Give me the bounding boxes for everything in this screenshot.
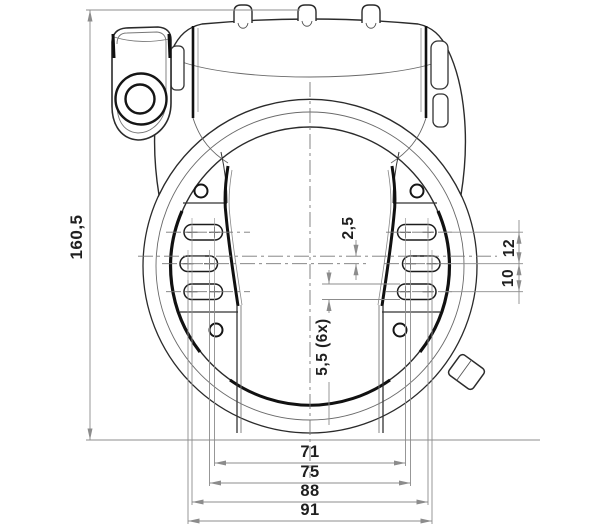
- rivet-hole: [394, 324, 407, 337]
- dim-span-88-label: 88: [300, 482, 319, 500]
- dim-slot-offset-label: 2,5: [340, 216, 357, 239]
- dim-slot-width-label: 5,5 (6x): [314, 318, 331, 375]
- dimension-slot-offset: [354, 240, 359, 280]
- plate-guide-left: [225, 166, 238, 306]
- keyhole-outer-circle: [116, 74, 167, 125]
- dim-span-91-label: 91: [300, 501, 319, 519]
- housing-side-tab-upper: [431, 41, 448, 89]
- frame-lock-drawing: 160,5 2,5 5,5 (6x) 12 10 71 75 88 91: [0, 0, 600, 529]
- dimension-slot-width: [322, 270, 400, 425]
- mounting-slots: [180, 225, 440, 300]
- mounting-hook: [447, 353, 486, 391]
- rivet-hole: [195, 185, 208, 198]
- dim-overall-height-label: 160,5: [67, 214, 86, 259]
- plate-guide-right: [382, 166, 395, 306]
- housing-side-tab-lower: [433, 94, 448, 127]
- rivet-hole: [411, 185, 424, 198]
- cylinder-right-edge: [169, 34, 170, 58]
- rivet-hole: [210, 324, 223, 337]
- cylinder-bracket: [171, 46, 184, 90]
- housing-tab: [362, 5, 380, 23]
- frame-lock-drawing-canvas: 160,5 2,5 5,5 (6x) 12 10 71 75 88 91: [0, 0, 600, 529]
- dimension-row-spacings: [440, 220, 523, 304]
- dim-row-spacing-upper-label: 12: [501, 239, 518, 257]
- housing-tab: [234, 5, 252, 23]
- housing-tab: [298, 5, 316, 21]
- dim-row-spacing-lower-label: 10: [500, 269, 517, 287]
- dim-span-71-label: 71: [300, 443, 319, 461]
- dim-span-75-label: 75: [300, 463, 319, 481]
- cylinder-left-edge: [113, 34, 114, 58]
